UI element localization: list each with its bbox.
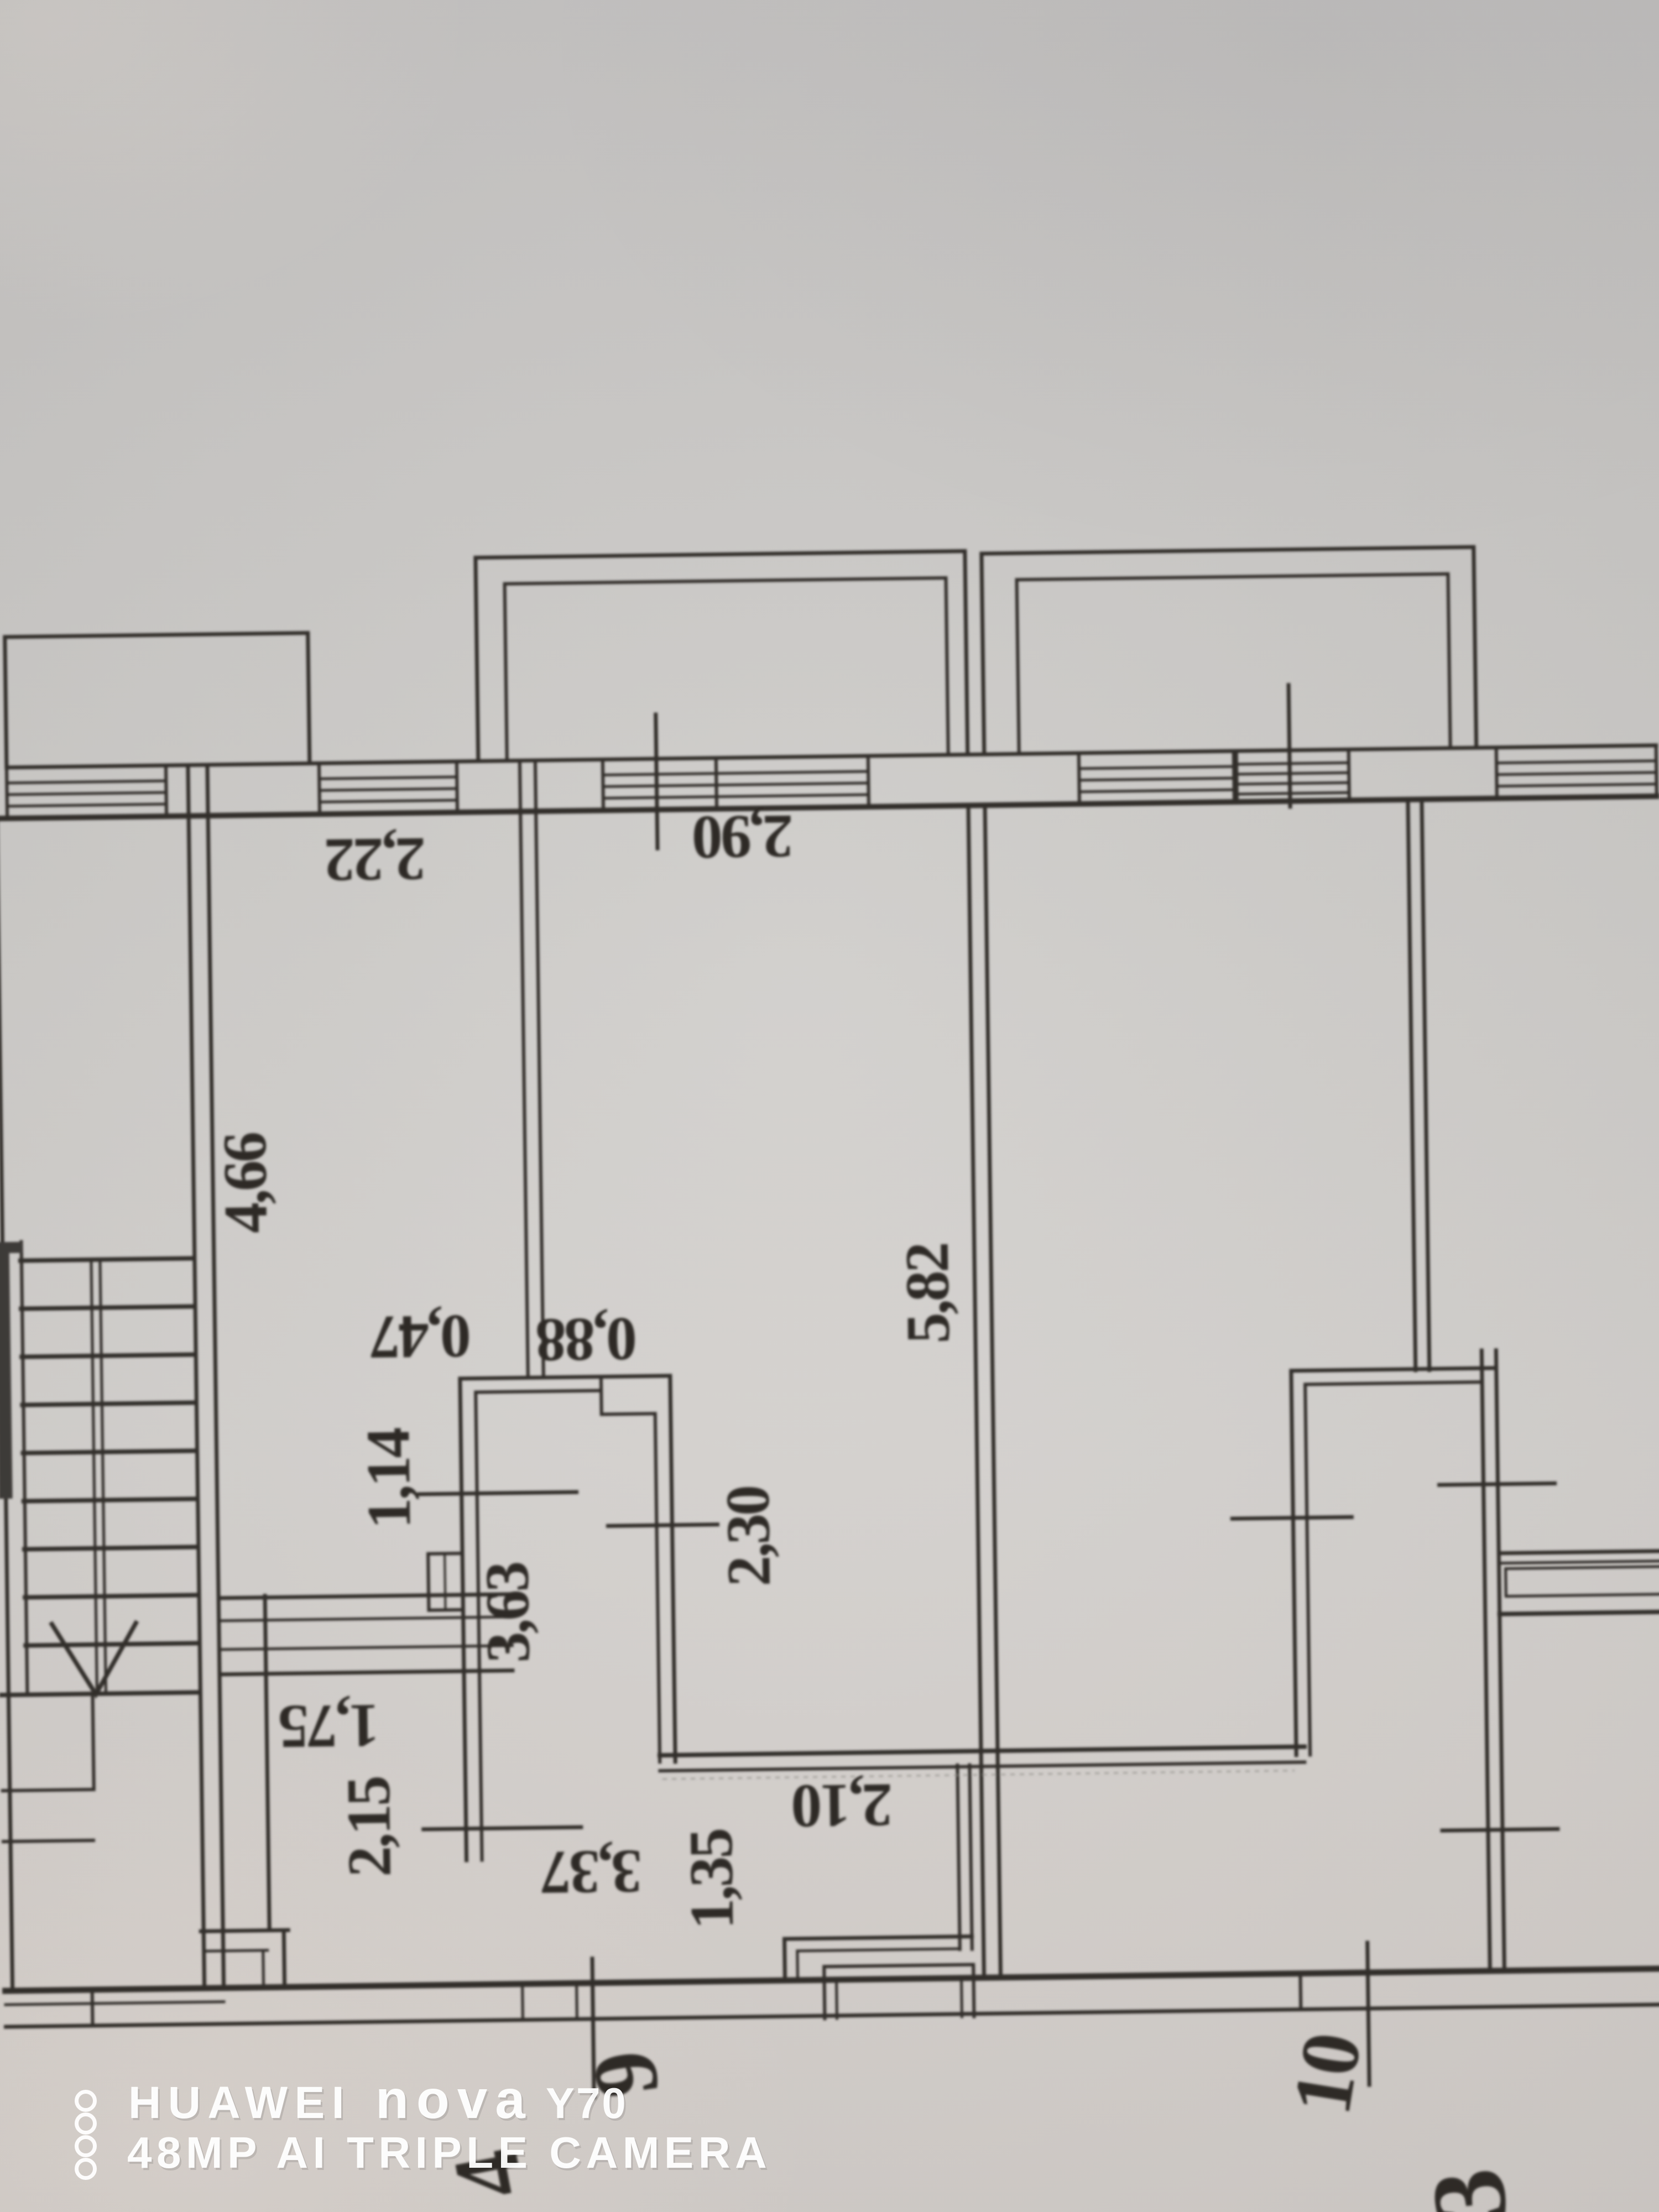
svg-text:3,37: 3,37 [541,1837,643,1907]
svg-text:2,90: 2,90 [693,802,794,872]
svg-text:2,30: 2,30 [714,1486,784,1587]
svg-text:3,63: 3,63 [473,1562,542,1663]
svg-text:10: 10 [1275,2028,1379,2121]
svg-text:HUAWEI: HUAWEI [128,2078,351,2128]
svg-text:2,10: 2,10 [792,1771,893,1840]
svg-text:1,35: 1,35 [677,1829,747,1930]
svg-text:nova: nova [375,2069,533,2130]
svg-text:2,15: 2,15 [335,1777,404,1877]
svg-text:0,88: 0,88 [536,1305,638,1374]
svg-text:1,14: 1,14 [354,1428,424,1530]
svg-text:0,47: 0,47 [370,1302,472,1371]
svg-text:4,66: 4,66 [211,1133,280,1234]
svg-text:5,82: 5,82 [893,1244,963,1344]
svg-text:2,22: 2,22 [326,825,426,894]
svg-text:Y70: Y70 [546,2079,628,2127]
svg-text:1,75: 1,75 [279,1691,380,1761]
svg-text:3: 3 [1409,2166,1530,2212]
svg-text:48MP AI TRIPLE CAMERA: 48MP AI TRIPLE CAMERA [127,2128,771,2177]
